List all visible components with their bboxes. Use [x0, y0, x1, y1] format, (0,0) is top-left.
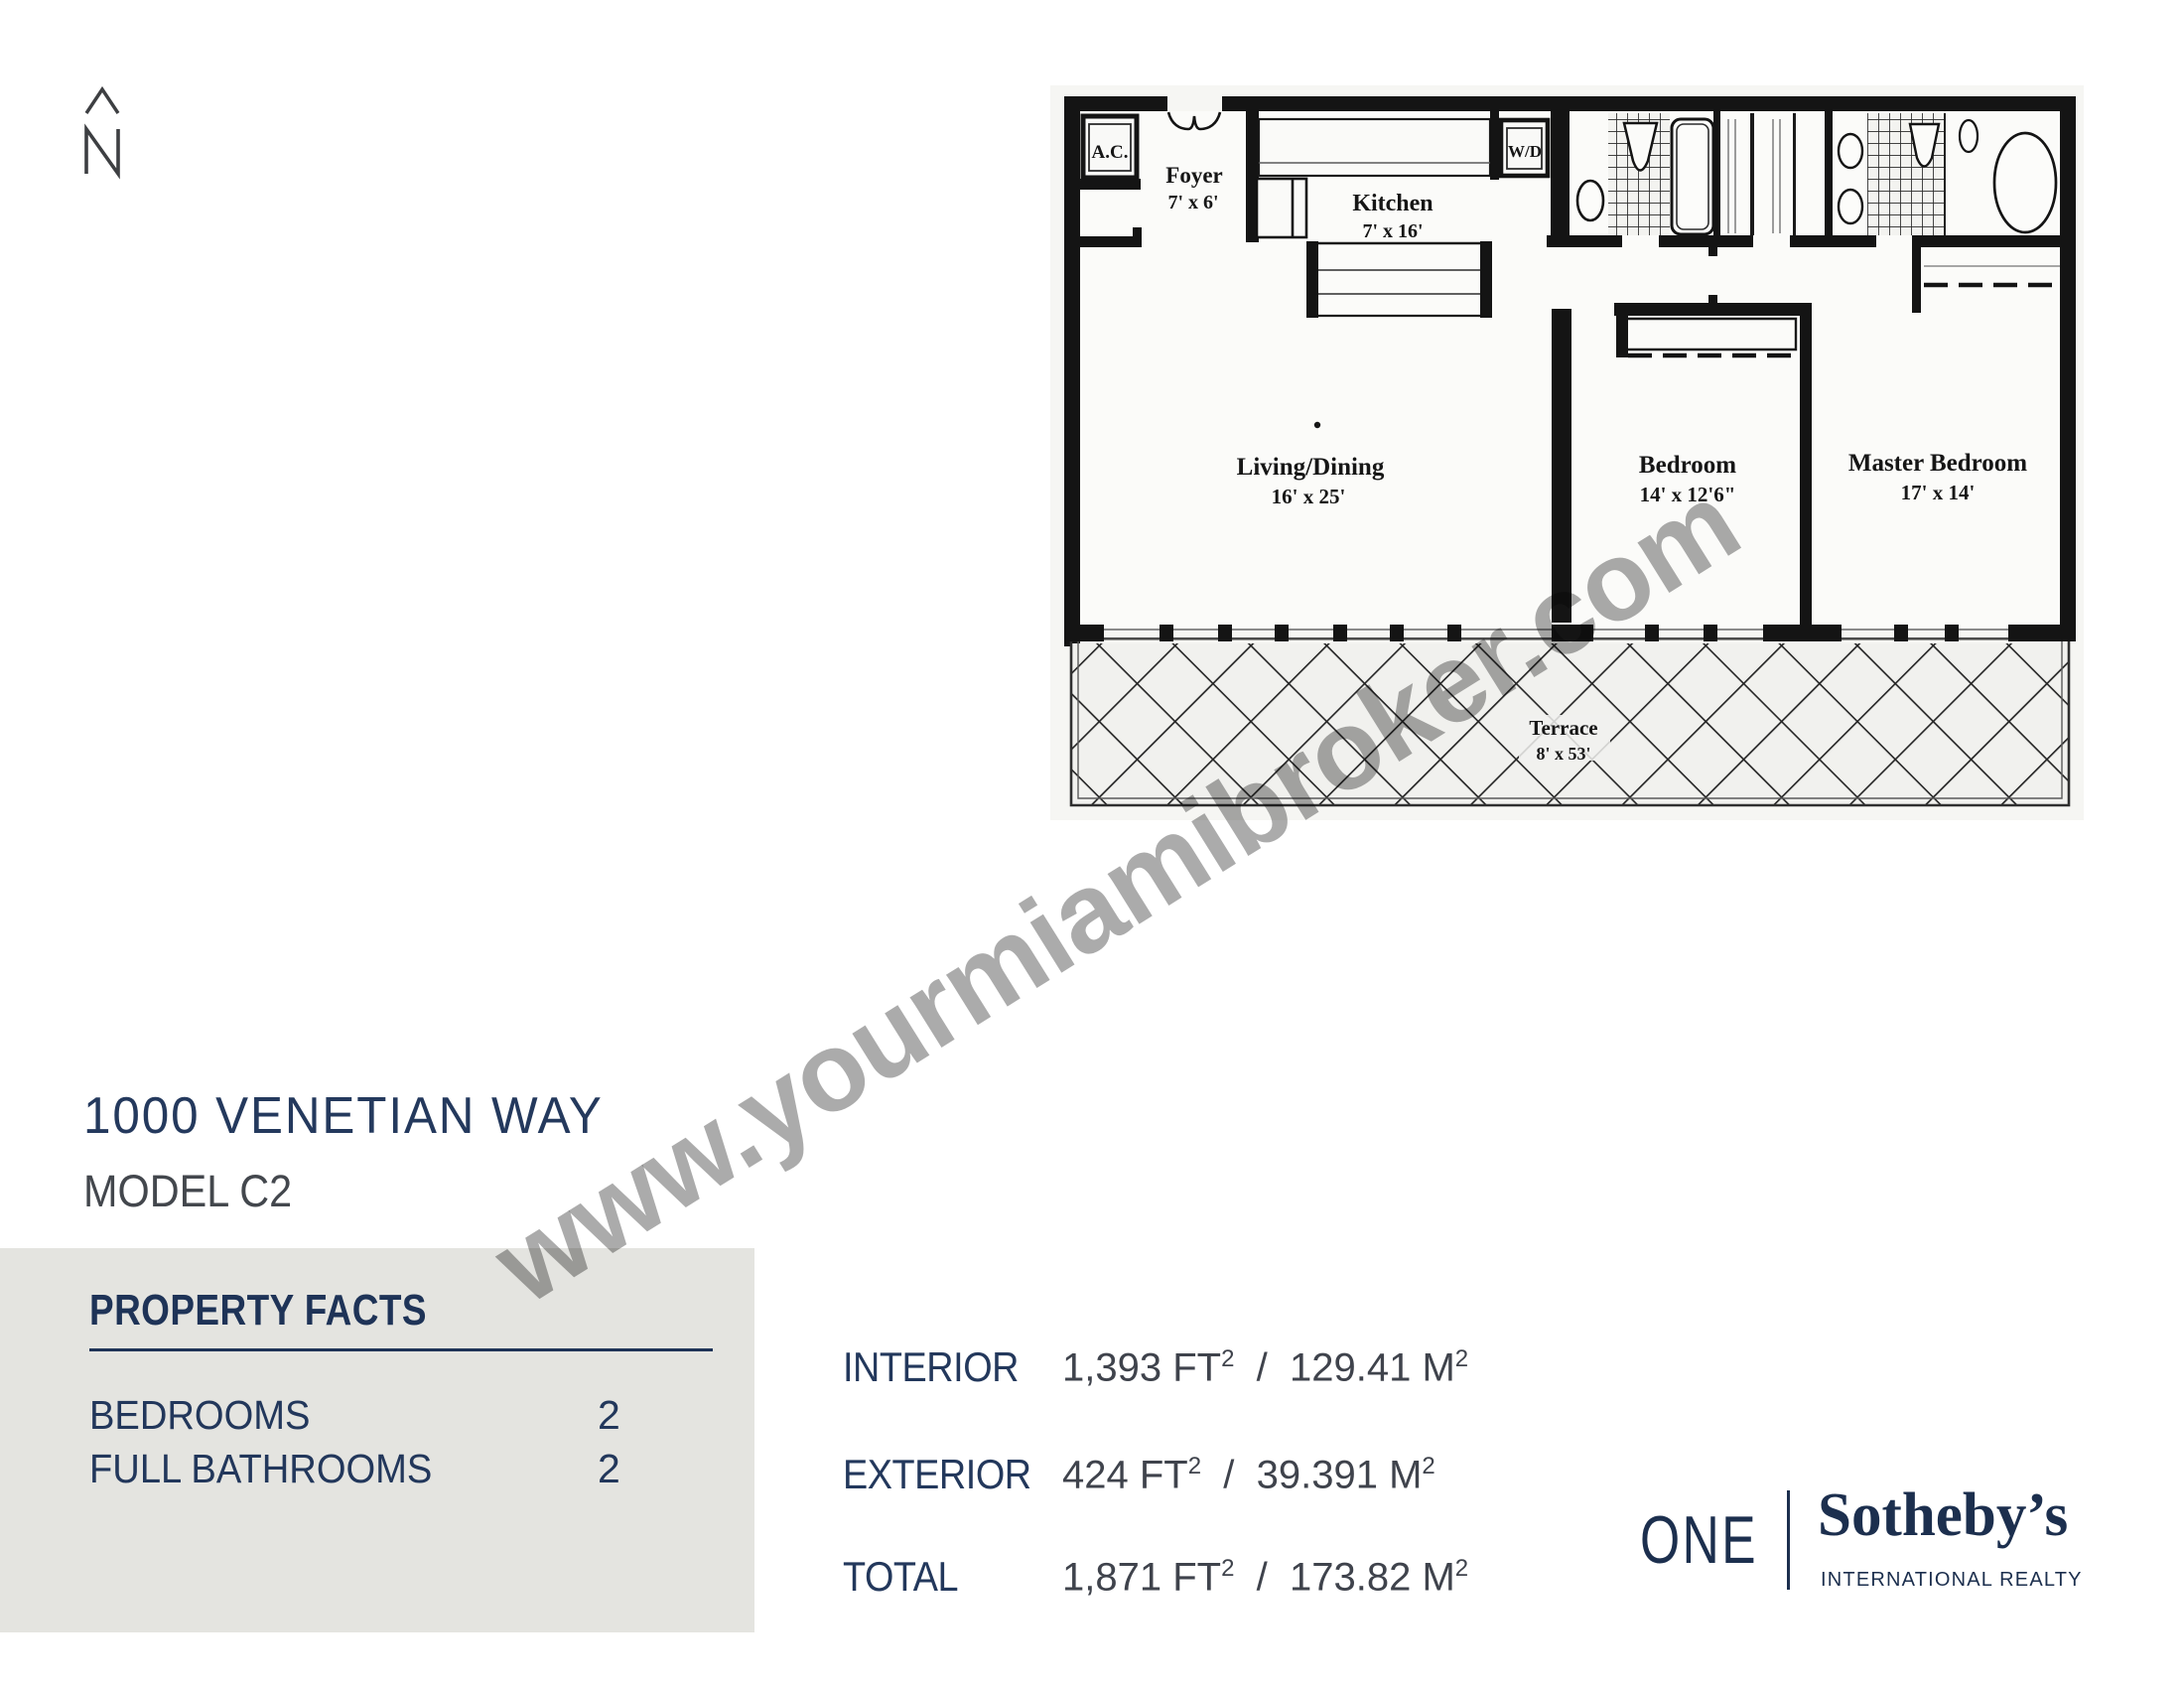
svg-text:Foyer: Foyer [1165, 163, 1222, 188]
svg-text:W/D: W/D [1508, 142, 1542, 161]
svg-text:Living/Dining: Living/Dining [1237, 454, 1385, 481]
svg-text:A.C.: A.C. [1092, 142, 1129, 163]
svg-text:Kitchen: Kitchen [1352, 191, 1433, 216]
svg-text:16' x 25': 16' x 25' [1272, 485, 1346, 508]
svg-text:Master Bedroom: Master Bedroom [1848, 450, 2027, 477]
svg-text:Terrace: Terrace [1529, 716, 1597, 740]
svg-text:17' x 14': 17' x 14' [1901, 481, 1976, 504]
svg-text:7' x 6': 7' x 6' [1167, 192, 1218, 213]
svg-text:7' x 16': 7' x 16' [1362, 220, 1423, 242]
svg-text:8' x 53': 8' x 53' [1536, 744, 1590, 764]
